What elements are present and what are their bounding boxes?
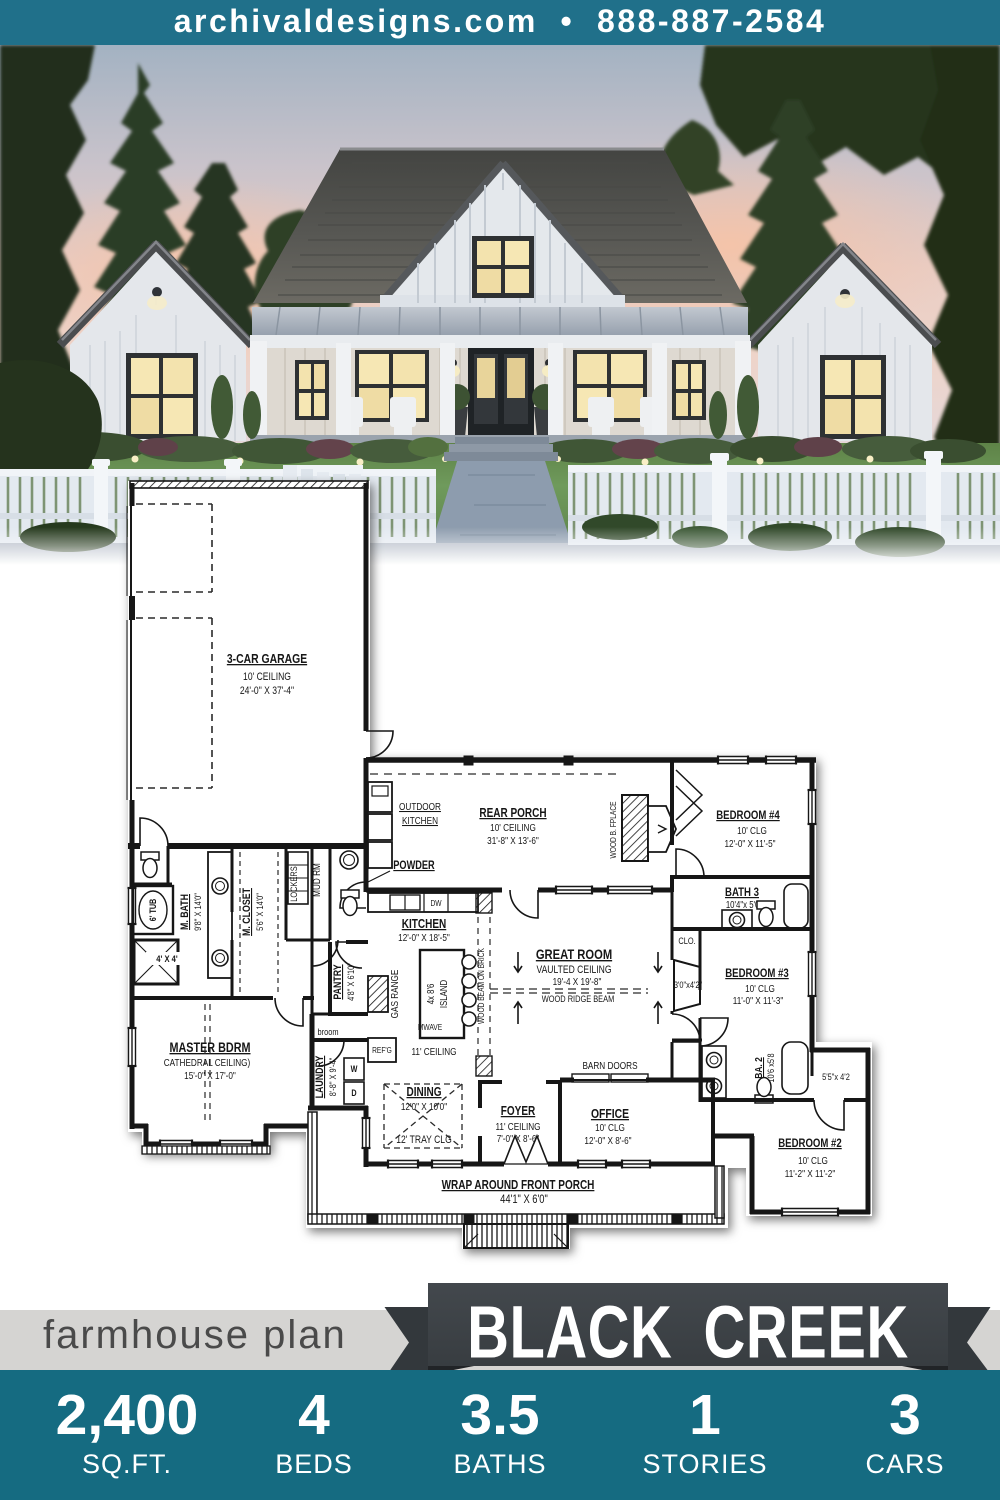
svg-text:WRAP AROUND FRONT PORCH: WRAP AROUND FRONT PORCH — [442, 1178, 595, 1192]
svg-text:D: D — [351, 1088, 357, 1098]
svg-text:W: W — [351, 1064, 358, 1074]
svg-text:3'0"x4'2": 3'0"x4'2" — [674, 980, 702, 991]
svg-text:44'1" X 6'0": 44'1" X 6'0" — [500, 1192, 548, 1206]
svg-text:KITCHEN: KITCHEN — [402, 815, 438, 827]
svg-text:5'5"x 4'2: 5'5"x 4'2 — [822, 1072, 850, 1083]
svg-text:24'-0" X 37'-4": 24'-0" X 37'-4" — [240, 685, 294, 697]
svg-text:CLO.: CLO. — [678, 936, 695, 947]
svg-text:M. BATH: M. BATH — [179, 894, 191, 930]
svg-text:12'-0" X 8'-6": 12'-0" X 8'-6" — [584, 1135, 631, 1147]
svg-text:VAULTED CEILING: VAULTED CEILING — [537, 964, 612, 976]
svg-text:10' CLG: 10' CLG — [745, 983, 775, 995]
svg-text:BEDROOM #3: BEDROOM #3 — [725, 966, 789, 980]
svg-text:GREAT ROOM: GREAT ROOM — [536, 946, 612, 962]
svg-text:BA. 2: BA. 2 — [753, 1057, 765, 1079]
svg-text:4' X 4': 4' X 4' — [156, 954, 177, 965]
svg-text:8'-8" X 9'-4": 8'-8" X 9'-4" — [328, 1058, 339, 1097]
svg-text:BARN DOORS: BARN DOORS — [582, 1060, 637, 1072]
svg-text:6' TUB: 6' TUB — [148, 898, 158, 921]
svg-text:11' CEILING: 11' CEILING — [411, 1046, 456, 1058]
svg-text:CATHEDRAL CEILING): CATHEDRAL CEILING) — [164, 1057, 251, 1069]
svg-text:12'-0" X 11'-5": 12'-0" X 11'-5" — [724, 838, 775, 850]
svg-text:WOOD B. FPLACE: WOOD B. FPLACE — [608, 801, 618, 858]
svg-text:WOOD BEAM ON BRICK: WOOD BEAM ON BRICK — [476, 948, 486, 1024]
svg-text:M. CLOSET: M. CLOSET — [241, 888, 253, 936]
svg-text:BEDROOM #2: BEDROOM #2 — [778, 1136, 842, 1150]
svg-text:11' CEILING: 11' CEILING — [495, 1121, 540, 1133]
svg-text:BEDROOM #4: BEDROOM #4 — [716, 808, 780, 822]
svg-text:MWAVE: MWAVE — [418, 1022, 443, 1032]
svg-text:11'-2" X 11'-2": 11'-2" X 11'-2" — [785, 1168, 836, 1180]
svg-text:ISLAND: ISLAND — [439, 980, 450, 1008]
svg-text:10' CLG: 10' CLG — [798, 1155, 828, 1167]
svg-text:BATH 3: BATH 3 — [725, 885, 759, 899]
svg-text:POWDER: POWDER — [393, 860, 435, 872]
svg-text:12' TRAY CLG: 12' TRAY CLG — [396, 1134, 452, 1146]
svg-text:OFFICE: OFFICE — [591, 1106, 629, 1121]
svg-text:11'-0" X 11'-3": 11'-0" X 11'-3" — [733, 995, 784, 1007]
svg-text:4x 8'6: 4x 8'6 — [426, 983, 437, 1004]
svg-text:KITCHEN: KITCHEN — [402, 917, 447, 931]
svg-text:12'-0" X 18'-5": 12'-0" X 18'-5" — [398, 932, 450, 944]
svg-text:GAS RANGE: GAS RANGE — [389, 970, 401, 1019]
svg-text:10' CEILING: 10' CEILING — [490, 822, 536, 834]
svg-text:10' CEILING: 10' CEILING — [243, 671, 291, 683]
svg-text:LOCKERS: LOCKERS — [289, 866, 300, 901]
svg-text:BLACK CREEK: BLACK CREEK — [467, 1292, 909, 1375]
svg-text:31'-8" X 13'-6": 31'-8" X 13'-6" — [487, 835, 539, 847]
svg-text:4'8" X 6'10": 4'8" X 6'10" — [346, 963, 357, 1001]
svg-text:9'8" X 14'0": 9'8" X 14'0" — [193, 893, 204, 931]
svg-text:DW: DW — [430, 898, 441, 908]
svg-text:10' CLG: 10' CLG — [595, 1122, 625, 1134]
svg-text:broom: broom — [318, 1027, 339, 1038]
svg-text:LAUNDRY: LAUNDRY — [314, 1055, 326, 1098]
svg-text:3-CAR GARAGE: 3-CAR GARAGE — [227, 651, 308, 666]
svg-text:5'6" X 14'0": 5'6" X 14'0" — [255, 893, 266, 931]
svg-text:FOYER: FOYER — [501, 1104, 536, 1118]
svg-text:10' CLG: 10' CLG — [737, 825, 767, 837]
svg-text:19'-4 X 19'-8": 19'-4 X 19'-8" — [553, 976, 602, 988]
svg-text:PANTRY: PANTRY — [332, 964, 344, 1000]
svg-text:WOOD RIDGE BEAM: WOOD RIDGE BEAM — [542, 994, 615, 1005]
svg-text:DINING: DINING — [407, 1085, 442, 1099]
svg-text:REAR PORCH: REAR PORCH — [479, 806, 546, 820]
svg-text:OUTDOOR: OUTDOOR — [399, 801, 441, 813]
svg-text:REF'G: REF'G — [372, 1045, 392, 1055]
